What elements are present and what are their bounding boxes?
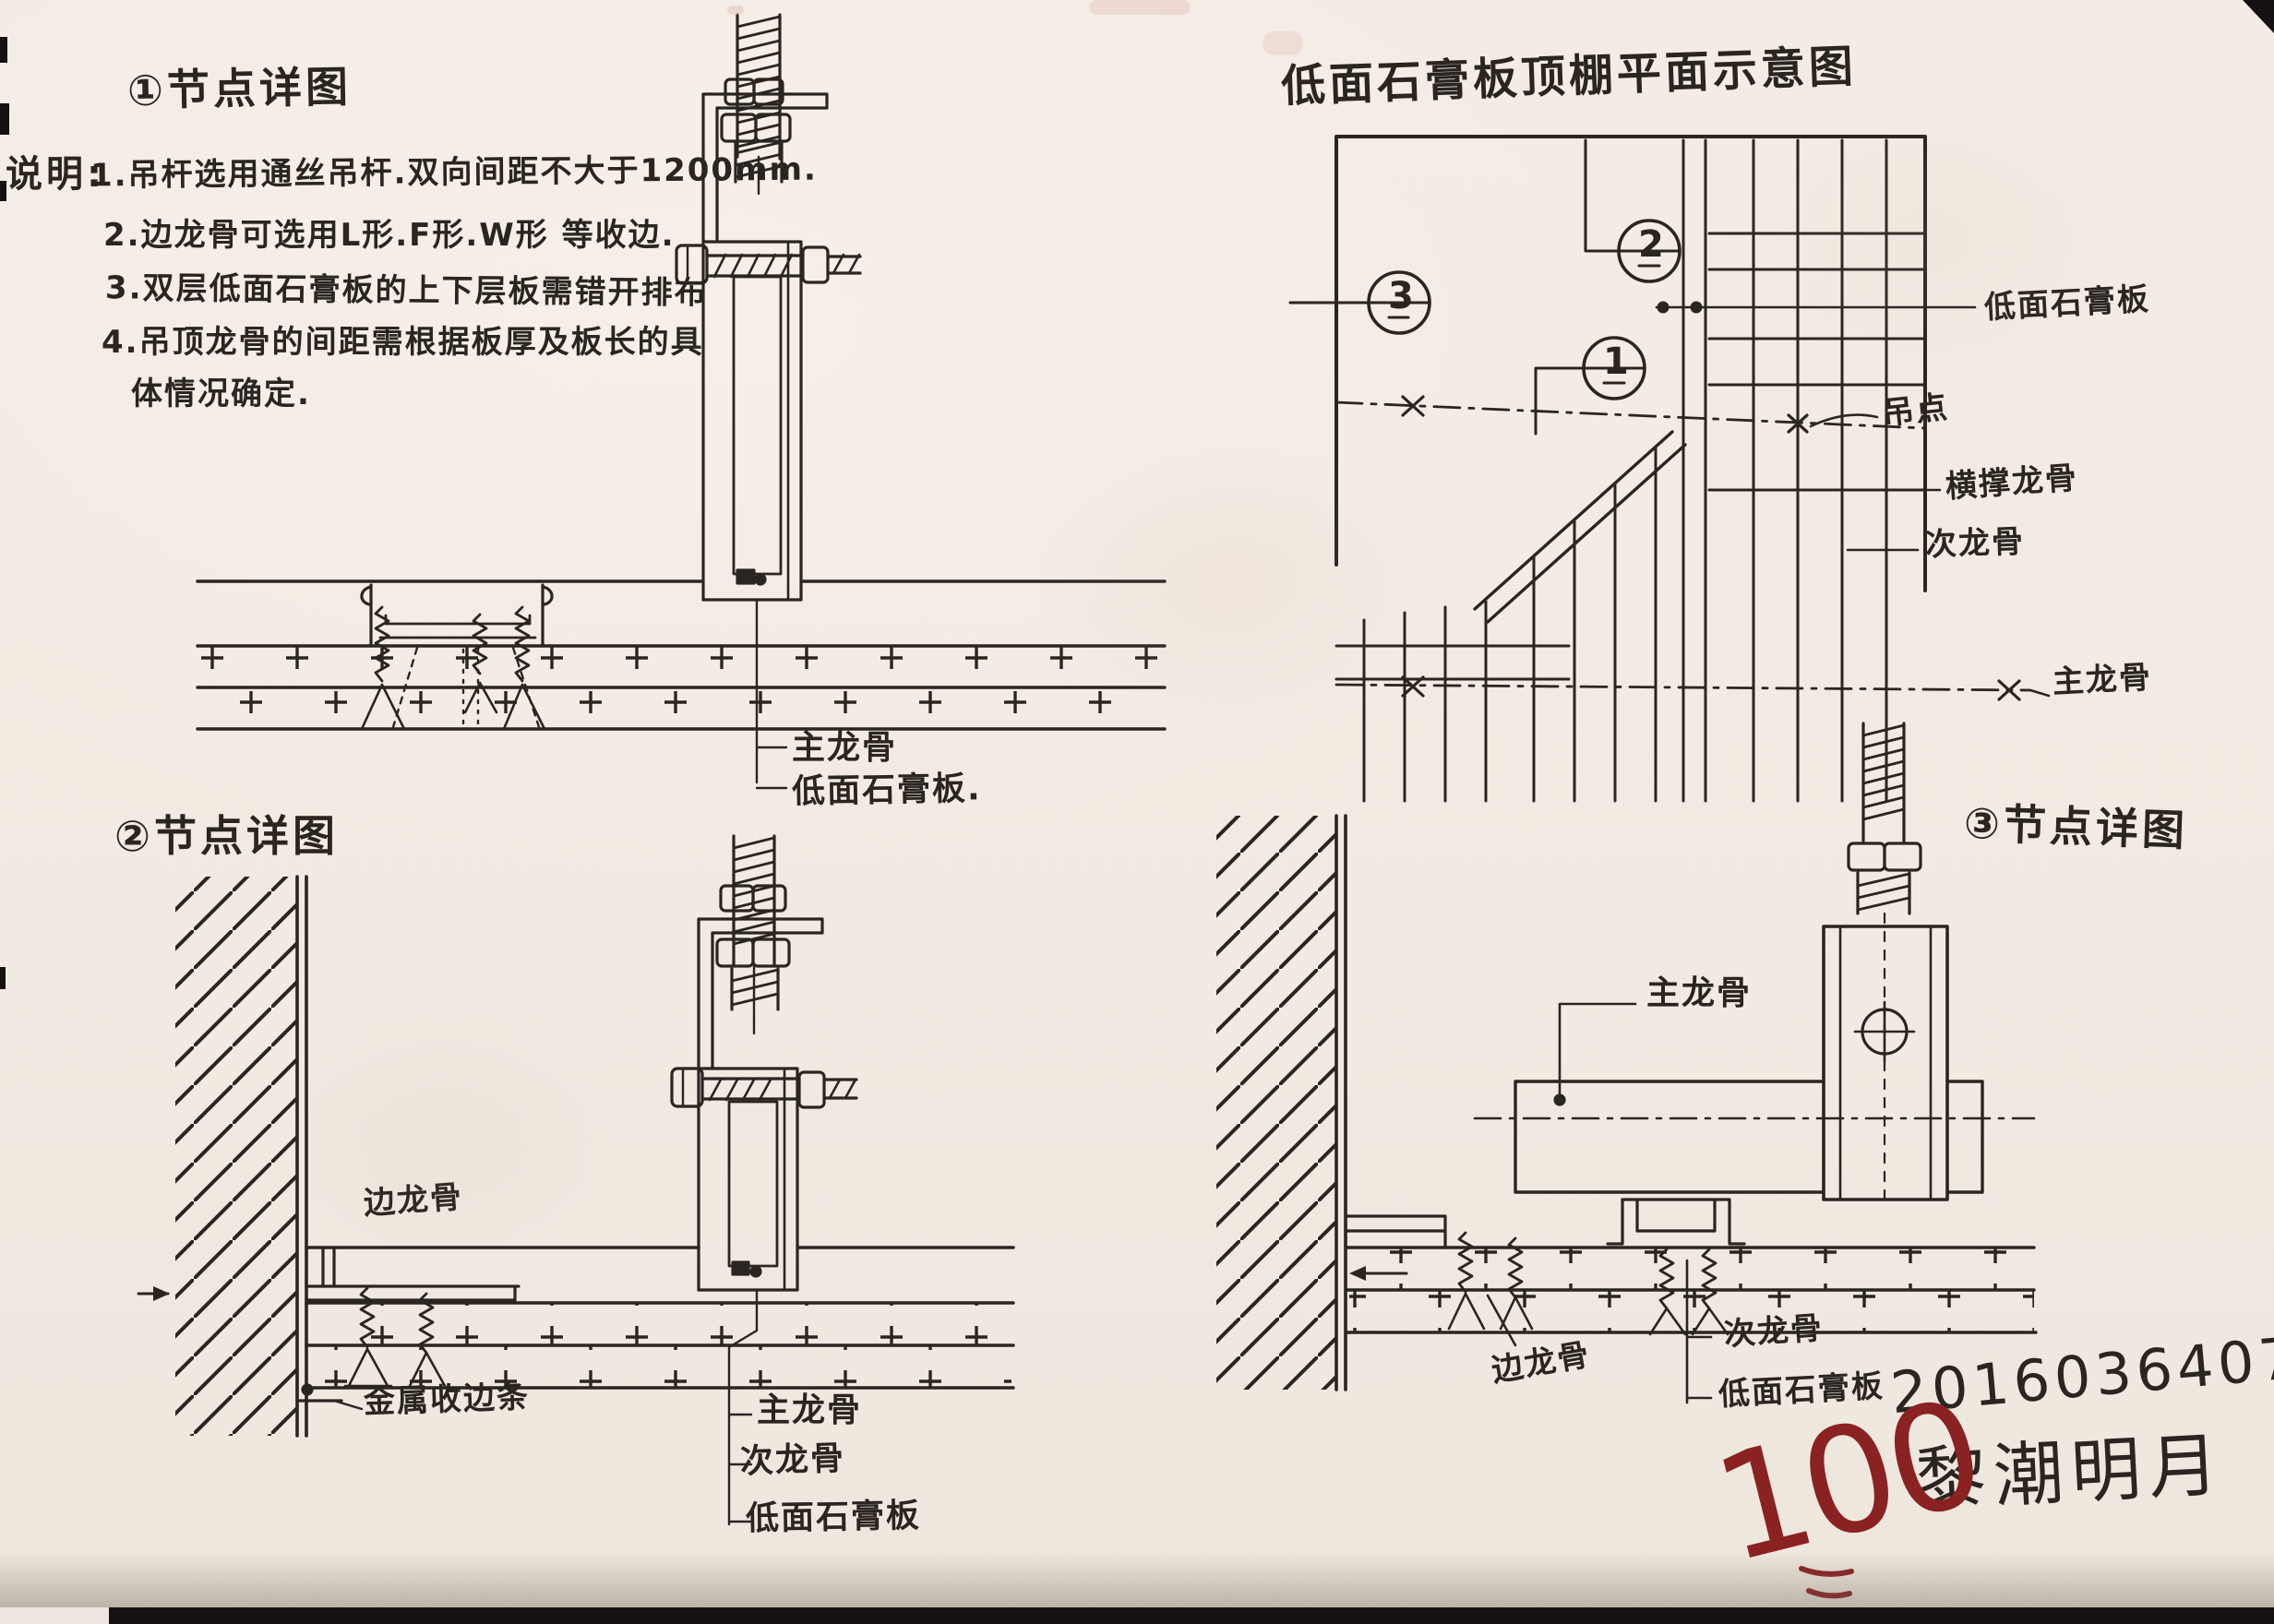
callout-board: 低面石膏板. [792, 771, 982, 809]
main-runner [1515, 1081, 1982, 1192]
detail-3-drawing [1216, 723, 2036, 1403]
label-metal-trim: 金属收边条 [363, 1381, 530, 1420]
label-secondary-runner: 次龙骨 [1723, 1312, 1825, 1352]
edge-runner [306, 1248, 519, 1301]
detail-2-drawing [138, 836, 1013, 1524]
label-main-runner: 主龙骨 [1646, 976, 1752, 1011]
label-main-runner: 主龙骨 [757, 1393, 862, 1428]
plan-label-board: 低面石膏板 [1983, 283, 2151, 325]
bubble-1-digit: 1 [1603, 342, 1625, 381]
label-board: 低面石膏板 [746, 1499, 922, 1536]
label-edge-runner: 边龙骨 [363, 1181, 464, 1221]
bubble-2-digit: 2 [1638, 225, 1660, 264]
detail-3-title: ③节点详图 [1963, 801, 2188, 854]
detail-1-title: ①节点详图 [127, 65, 353, 113]
detail-1-drawing [197, 15, 1165, 788]
edge-runner [1347, 1216, 1445, 1248]
detail-2-title: ②节点详图 [114, 814, 339, 858]
note-line: 3.双层低面石膏板的上下层板需错开排布 [105, 272, 708, 310]
scanned-drawing-sheet: ①节点详图 说明: 1.吊杆选用通丝吊杆.双向间距不大于1200mm. 2.边龙… [0, 0, 2274, 1624]
plan-label-secondary-runner: 次龙骨 [1924, 526, 2025, 562]
wall-hatch [1216, 816, 1336, 1390]
callout-main-runner: 主龙骨 [792, 731, 897, 766]
bubble-3-digit: 3 [1388, 277, 1410, 316]
note-line: 2.边龙骨可选用L形.F形.W形 等收边. [103, 220, 676, 253]
scan-shadow [0, 1552, 2274, 1607]
ceiling-plan-drawing [1290, 137, 2049, 801]
note-line: 4.吊顶龙骨的间距需根据板厚及板长的具 [102, 327, 704, 360]
wall-hatch [175, 877, 297, 1436]
plan-label-main-runner: 主龙骨 [2052, 662, 2153, 699]
furring-channel [1608, 1200, 1744, 1244]
plan-label-hang-point: 吊点 [1881, 391, 1950, 431]
main-runner-channel [703, 242, 801, 600]
label-secondary-runner: 次龙骨 [739, 1441, 845, 1480]
note-line: 1.吊杆选用通丝吊杆.双向间距不大于1200mm. [90, 154, 818, 194]
note-line: 体情况确定. [131, 378, 311, 412]
